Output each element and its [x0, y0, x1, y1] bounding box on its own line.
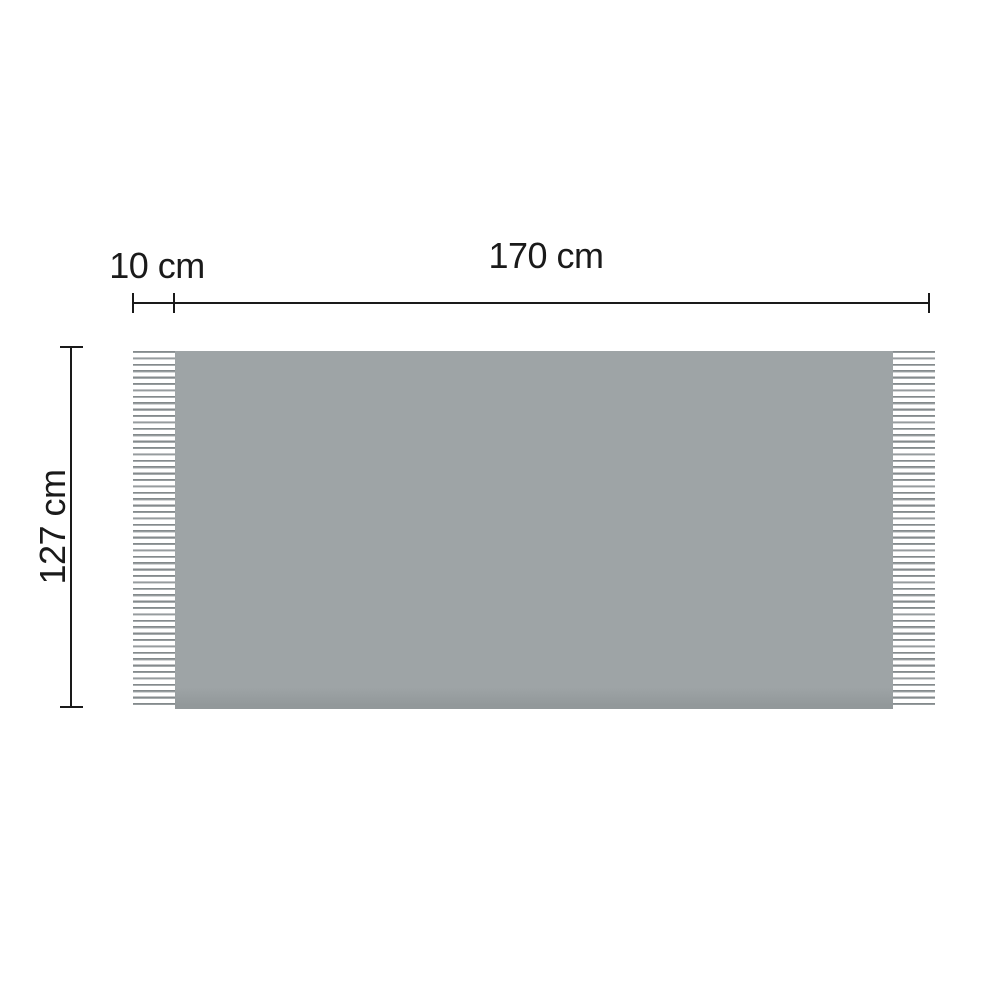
blanket-height-label: 127 cm	[35, 469, 71, 584]
height-dimension-line	[70, 347, 72, 708]
blanket-dimension-diagram: 10 cm 170 cm 127 cm	[0, 0, 1000, 1000]
width-dimension-tick-right	[928, 293, 930, 313]
width-dimension-tick-left	[132, 293, 134, 313]
blanket-right-fringe	[893, 351, 935, 709]
width-dimension-tick-fringe-boundary	[173, 293, 175, 313]
blanket-width-label: 170 cm	[488, 238, 603, 274]
width-dimension-line	[132, 302, 930, 304]
height-dimension-tick-top	[60, 346, 83, 348]
blanket-left-fringe	[133, 351, 175, 709]
blanket-body	[175, 351, 893, 709]
height-dimension-tick-bottom	[60, 706, 83, 708]
fringe-width-label: 10 cm	[109, 248, 205, 284]
